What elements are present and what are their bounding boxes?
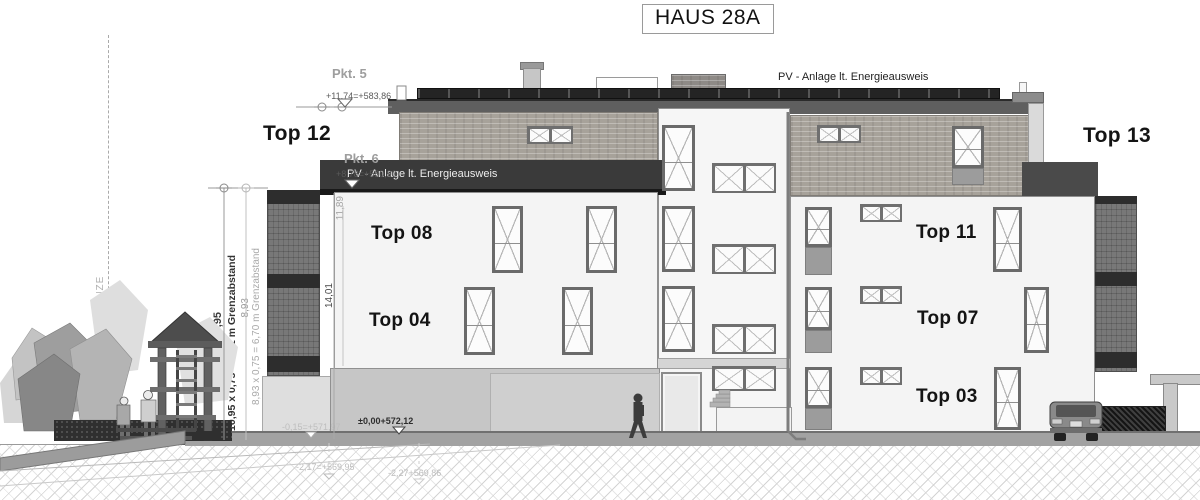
dim-height-total: 14,01 xyxy=(324,283,335,308)
stair-window xyxy=(662,206,695,272)
balcony-slab xyxy=(1095,352,1137,368)
unit-label-top03: Top 03 xyxy=(916,386,978,408)
unit-label-top04: Top 04 xyxy=(369,310,431,332)
window-tall xyxy=(994,367,1021,430)
attic-terrace-door xyxy=(952,126,984,168)
window-pair xyxy=(817,125,861,143)
stair-window xyxy=(662,286,695,352)
window-tall xyxy=(464,287,495,355)
window-tall xyxy=(1024,287,1049,353)
unit-label-top07: Top 07 xyxy=(917,308,979,330)
entrance-door xyxy=(661,372,702,437)
balcony-slab xyxy=(267,190,320,204)
elevation-drawing: PV - Anlage lt. Energieausweis Top 08 To… xyxy=(0,0,1200,500)
trees-group xyxy=(0,280,238,431)
point5-elevation: +11,74=+583,86 xyxy=(326,91,391,101)
dim-right-formula: 8,93 x 0,75 = 6,70 m Grenzabstand xyxy=(251,248,262,405)
property-boundary-line xyxy=(108,35,109,440)
hedge-right xyxy=(1098,406,1166,434)
dim-left-total: 10,95 xyxy=(212,312,224,340)
french-window xyxy=(805,287,832,330)
unit-label-top08: Top 08 xyxy=(371,223,433,245)
balcony-slab xyxy=(1095,272,1137,286)
terrain-level-lower: -2,27+569,86 xyxy=(388,468,441,478)
window-tall xyxy=(562,287,593,355)
parapet-panel xyxy=(805,330,832,353)
dim-right-total: 8,93 xyxy=(240,298,251,317)
play-tower xyxy=(148,312,222,440)
window-pair xyxy=(860,204,902,222)
earth-hatch xyxy=(0,444,1200,500)
window-tall xyxy=(993,207,1022,272)
point6-label: Pkt. 6 xyxy=(344,151,379,166)
dim-left-formula: 10,95 x 0,75 = 8,21 m Grenzabstand xyxy=(226,255,238,431)
window-pair xyxy=(712,244,776,274)
parapet-panel xyxy=(805,408,832,430)
point6-elevation: +8,78=+580,90 xyxy=(336,169,397,179)
balcony-slab xyxy=(267,274,320,288)
unit-label-top12: Top 12 xyxy=(263,122,331,146)
solar-panel-strip xyxy=(417,88,1000,99)
window-pair xyxy=(712,366,776,391)
balcony-slab xyxy=(1095,196,1137,204)
top13-balcony xyxy=(1022,162,1098,200)
property-boundary-label: GRUNDGRENZE xyxy=(95,235,106,365)
french-window xyxy=(805,207,832,247)
balcony-slab xyxy=(267,356,320,372)
window-pair xyxy=(527,126,573,144)
unit-label-top13: Top 13 xyxy=(1083,124,1151,148)
children-figures xyxy=(117,391,156,439)
unit-label-top11: Top 11 xyxy=(916,222,977,244)
door-parapet-panel xyxy=(952,168,984,185)
parapet-panel xyxy=(805,247,832,275)
pv-note-right: PV - Anlage lt. Energieausweis xyxy=(778,71,928,83)
level-zero-text: ±0,00+572,12 xyxy=(358,416,413,426)
dim-height-upper: 11,89 xyxy=(335,196,346,220)
bench xyxy=(116,428,196,445)
french-window xyxy=(805,367,832,408)
point5-label: Pkt. 5 xyxy=(332,66,367,81)
window-pair xyxy=(860,367,902,385)
road-surface xyxy=(185,431,1200,446)
window-pair xyxy=(712,163,776,193)
window-pair xyxy=(712,324,776,354)
roof-cap-right xyxy=(1012,92,1044,103)
drawing-title: HAUS 28A xyxy=(642,4,774,34)
stair-window xyxy=(662,125,695,191)
window-tall xyxy=(492,206,523,273)
terrain-level-upper: -2,17=+569,95 xyxy=(296,462,355,472)
window-pair xyxy=(860,286,902,304)
window-tall xyxy=(586,206,617,273)
